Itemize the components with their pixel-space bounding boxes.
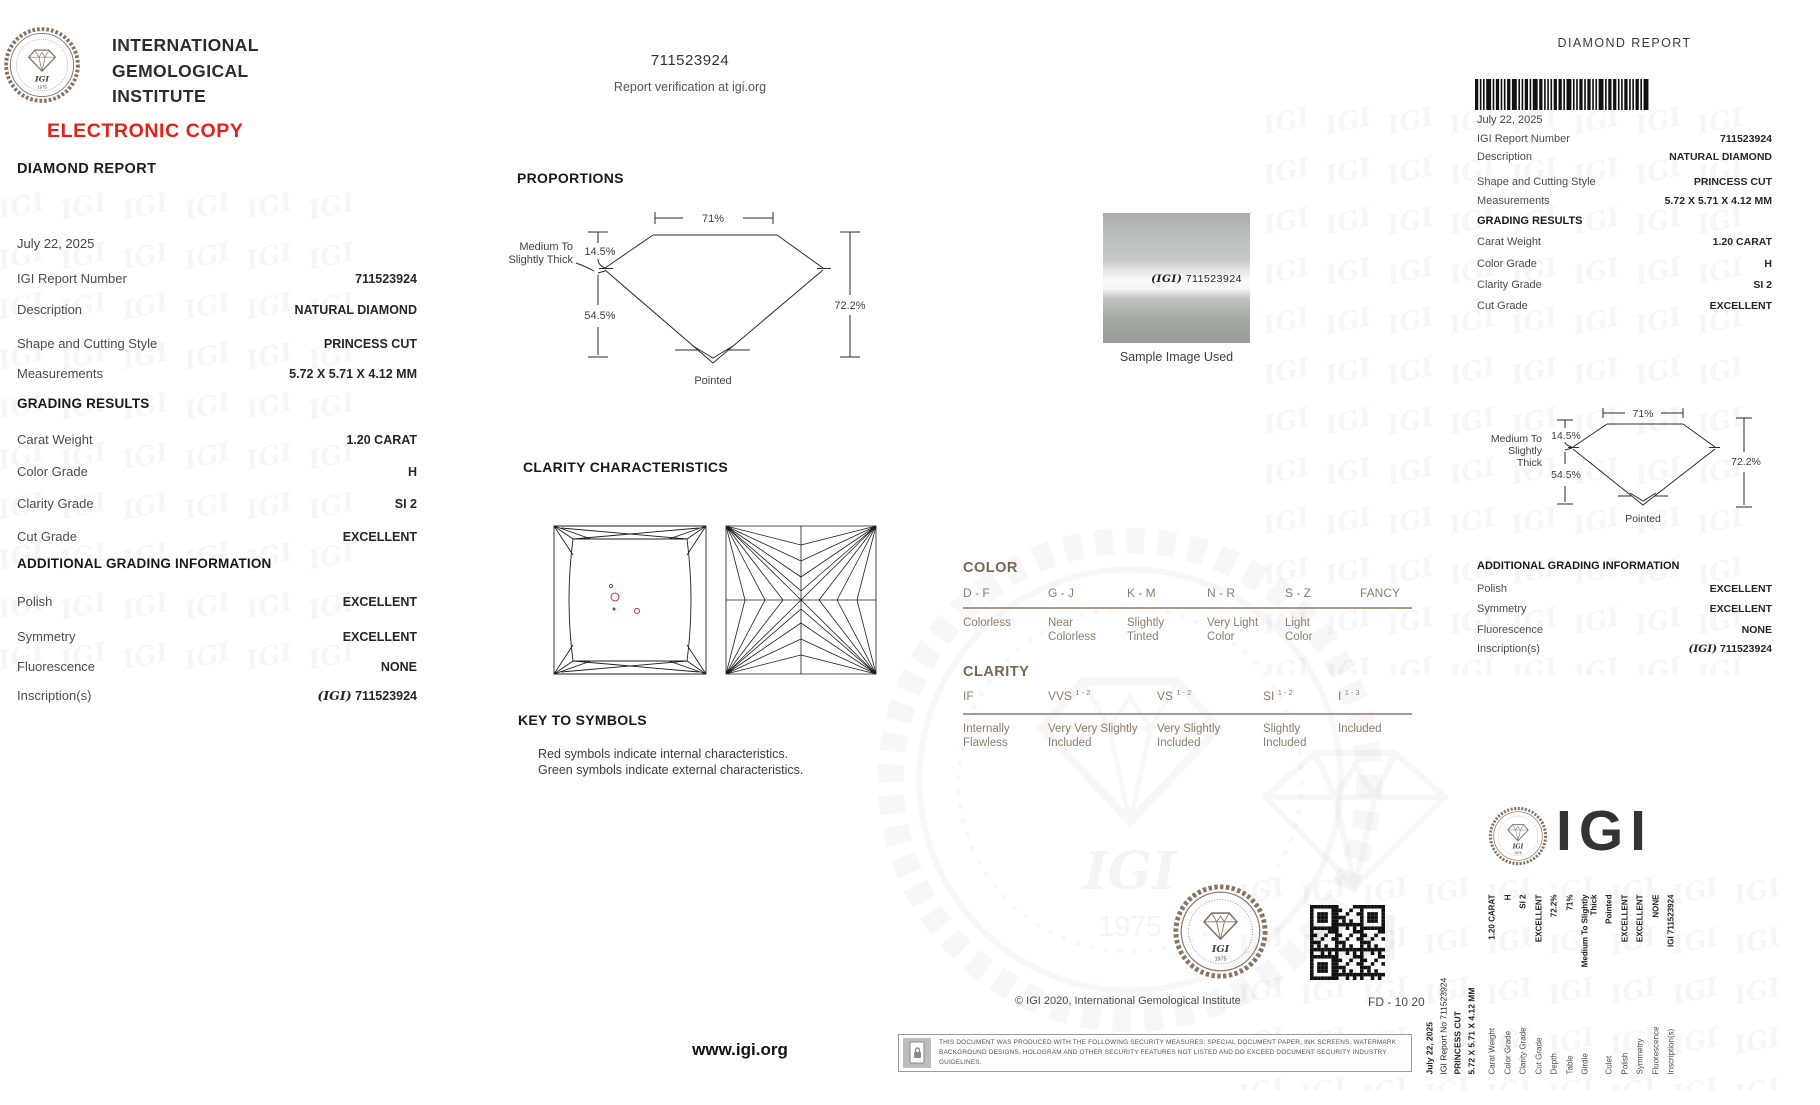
- svg-text:14.5%: 14.5%: [1551, 430, 1581, 442]
- proportions-diagram-small: 71% 14.5% 54.5% 72.2% Medium To Slightly…: [1480, 402, 1770, 527]
- verification-report-number: 711523924: [540, 52, 840, 69]
- report-row: Shape and Cutting StylePRINCESS CUT: [17, 336, 417, 351]
- stub-row: Color GradeH: [1503, 895, 1519, 1075]
- color-grade-column: D - FColorless: [963, 586, 1033, 630]
- security-statement-strip: THIS DOCUMENT WAS PRODUCED WITH THE FOLL…: [898, 1034, 1412, 1072]
- svg-text:Thick: Thick: [1517, 457, 1543, 469]
- electronic-copy-label: ELECTRONIC COPY: [47, 120, 243, 143]
- clarity-grade-column: SI 1 - 2Slightly Included: [1263, 688, 1321, 751]
- diamond-report-document: IGIIGIIGIIGIIGIIGIIGIIGIIGIIGIIGIIGIIGII…: [0, 0, 1820, 1105]
- report-row: DescriptionNATURAL DIAMOND: [1477, 151, 1772, 163]
- report-row: Cut GradeEXCELLENT: [1477, 300, 1772, 312]
- report-type-title: DIAMOND REPORT: [17, 161, 156, 177]
- clarity-grade-column: VVS 1 - 2Very Very Slightly Included: [1048, 688, 1143, 751]
- additional-grading-heading: ADDITIONAL GRADING INFORMATION: [1477, 560, 1679, 572]
- stub-row: Table71%: [1565, 895, 1581, 1075]
- svg-text:Medium To: Medium To: [1491, 433, 1542, 445]
- stub-row: Cut GradeEXCELLENT: [1534, 895, 1550, 1075]
- svg-text:14.5%: 14.5%: [584, 246, 615, 258]
- color-scale-heading: COLOR: [963, 560, 1018, 576]
- report-row: SymmetryEXCELLENT: [1477, 603, 1772, 615]
- igi-inscription-icon: (IGI): [317, 688, 351, 703]
- igi-inscription-icon: (IGI): [1151, 273, 1182, 285]
- report-stub-rotated: July 22, 2025 IGI Report No 711523924 PR…: [1425, 895, 1690, 1075]
- clarity-scale-heading: CLARITY: [963, 664, 1029, 680]
- stub-row: GirdleMedium To Slightly Thick: [1581, 895, 1605, 1075]
- igi-brand-seal: [1488, 806, 1548, 866]
- additional-grading-heading: ADDITIONAL GRADING INFORMATION: [17, 556, 271, 571]
- report-barcode: [1475, 79, 1650, 110]
- svg-text:72.2%: 72.2%: [834, 300, 865, 312]
- inscription-row: Inscription(s) (IGI) 711523924: [17, 688, 417, 703]
- security-statement-text: THIS DOCUMENT WAS PRODUCED WITH THE FOLL…: [939, 1038, 1411, 1068]
- igi-logo-seal: [3, 26, 81, 104]
- laser-inscription: (IGI) 711523924: [1151, 273, 1242, 285]
- clarity-grade-column: VS 1 - 2Very Slightly Included: [1157, 688, 1245, 751]
- color-grade-column: N - RVery Light Color: [1207, 586, 1277, 645]
- report-row: SymmetryEXCELLENT: [17, 629, 417, 644]
- color-grade-column: K - MSlightly Tinted: [1127, 586, 1183, 645]
- report-row: Measurements5.72 X 5.71 X 4.12 MM: [1477, 195, 1772, 207]
- report-row: PolishEXCELLENT: [1477, 583, 1772, 595]
- color-grade-column: S - ZLight Color: [1285, 586, 1331, 645]
- qr-code: [1310, 905, 1385, 980]
- secure-document-icon: [903, 1038, 931, 1068]
- report-row: IGI Report Number711523924: [17, 271, 417, 286]
- org-line: GEMOLOGICAL: [112, 59, 259, 85]
- stub-measurements: 5.72 X 5.71 X 4.12 MM: [1467, 895, 1481, 1075]
- report-row: IGI Report Number711523924: [1477, 133, 1772, 145]
- report-row: Carat Weight1.20 CARAT: [1477, 236, 1772, 248]
- report-row: Shape and Cutting StylePRINCESS CUT: [1477, 176, 1772, 188]
- svg-text:54.5%: 54.5%: [1551, 469, 1581, 481]
- report-row: PolishEXCELLENT: [17, 594, 417, 609]
- report-row: Carat Weight1.20 CARAT: [17, 432, 417, 447]
- report-date: July 22, 2025: [17, 236, 94, 251]
- girdle-label: Medium To: [519, 241, 573, 253]
- key-to-symbols-heading: KEY TO SYMBOLS: [518, 712, 647, 728]
- report-row: Color GradeH: [17, 464, 417, 479]
- stub-row: SymmetryEXCELLENT: [1636, 895, 1652, 1075]
- stub-row: CuletPointed: [1605, 895, 1621, 1075]
- grading-results-heading: GRADING RESULTS: [17, 396, 150, 411]
- form-code: FD - 10 20: [1368, 995, 1425, 1009]
- culet-label: Pointed: [694, 375, 731, 387]
- clarity-grade-column: I 1 - 3Included: [1338, 688, 1398, 736]
- igi-brand-wordmark: IGI: [1556, 798, 1653, 864]
- color-grade-column: FANCY: [1360, 586, 1422, 616]
- igi-inscription-icon: (IGI): [1688, 643, 1717, 655]
- copyright-line: © IGI 2020, International Gemological In…: [1015, 995, 1241, 1007]
- proportions-heading: PROPORTIONS: [517, 170, 624, 186]
- stub-row: PolishEXCELLENT: [1620, 895, 1636, 1075]
- org-line: INSTITUTE: [112, 84, 259, 110]
- svg-text:71%: 71%: [702, 213, 724, 225]
- key-to-symbols-text: Red symbols indicate internal characteri…: [538, 747, 803, 778]
- report-row: Measurements5.72 X 5.71 X 4.12 MM: [17, 366, 417, 381]
- igi-stamp-seal: [1172, 883, 1269, 980]
- clarity-characteristics-heading: CLARITY CHARACTERISTICS: [523, 459, 728, 475]
- stub-date: July 22, 2025: [1425, 895, 1439, 1075]
- report-row: Color GradeH: [1477, 258, 1772, 270]
- color-grade-column: G - JNear Colorless: [1048, 586, 1110, 645]
- verification-note: Report verification at igi.org: [540, 80, 840, 94]
- clarity-plot-pavilion-view: [725, 525, 877, 675]
- sample-image-caption: Sample Image Used: [1103, 350, 1250, 364]
- svg-text:Pointed: Pointed: [1625, 513, 1661, 525]
- stub-report-no: IGI Report No 711523924: [1439, 895, 1453, 1075]
- girdle-label: Slightly Thick: [508, 254, 573, 266]
- report-row: Clarity GradeSI 2: [1477, 279, 1772, 291]
- inscription-row: Inscription(s) (IGI) 711523924: [1477, 643, 1772, 655]
- website-url: www.igi.org: [640, 1040, 840, 1060]
- report-row: FluorescenceNONE: [1477, 624, 1772, 636]
- report-date: July 22, 2025: [1477, 114, 1542, 126]
- grading-results-heading: GRADING RESULTS: [1477, 215, 1583, 227]
- report-row: Clarity GradeSI 2: [17, 496, 417, 511]
- report-row: Cut GradeEXCELLENT: [17, 529, 417, 544]
- stub-shape: PRINCESS CUT: [1453, 895, 1467, 1075]
- sample-diamond-photo: (IGI) 711523924: [1103, 213, 1250, 343]
- stub-row: Inscription(s)IGI 711523924: [1667, 895, 1683, 1075]
- stub-row: Carat Weight1.20 CARAT: [1488, 895, 1504, 1075]
- stub-row: Depth72.2%: [1550, 895, 1566, 1075]
- report-row: FluorescenceNONE: [17, 659, 417, 674]
- svg-text:Slightly: Slightly: [1508, 445, 1543, 457]
- clarity-grade-column: IF Internally Flawless: [963, 688, 1029, 751]
- organization-name: INTERNATIONAL GEMOLOGICAL INSTITUTE: [112, 33, 259, 110]
- stub-row: FluorescenceNONE: [1651, 895, 1667, 1075]
- svg-text:72.2%: 72.2%: [1731, 456, 1761, 468]
- report-row: DescriptionNATURAL DIAMOND: [17, 302, 417, 317]
- stub-row: Clarity GradeSI 2: [1519, 895, 1535, 1075]
- proportions-diagram: 71% 14.5% 54.5% 72.2% Medium To Slightly…: [490, 205, 885, 395]
- svg-text:71%: 71%: [1632, 408, 1653, 420]
- svg-text:54.5%: 54.5%: [584, 310, 615, 322]
- right-panel-title: DIAMOND REPORT: [1477, 36, 1772, 50]
- org-line: INTERNATIONAL: [112, 33, 259, 59]
- clarity-plot-crown-view: [553, 525, 707, 675]
